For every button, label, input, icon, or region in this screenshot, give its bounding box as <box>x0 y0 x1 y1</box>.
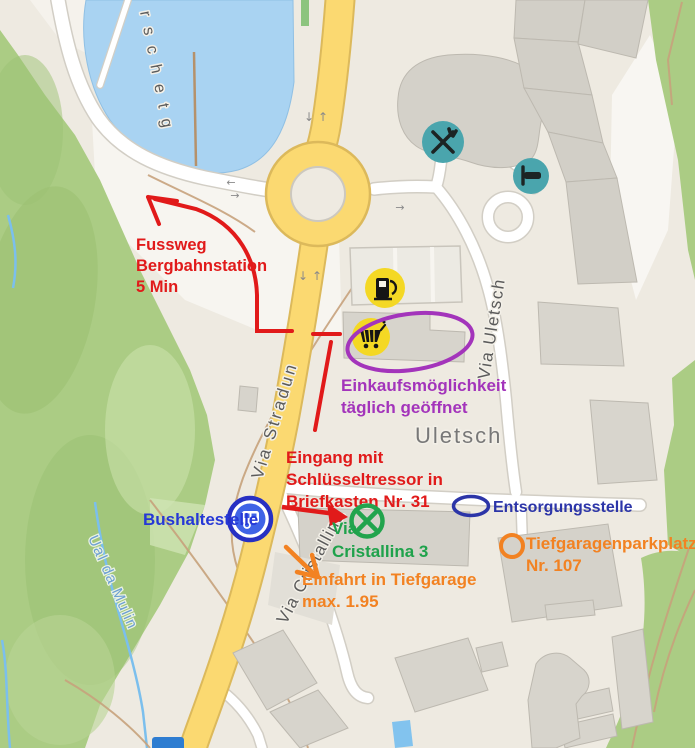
svg-text:Cristallina 3: Cristallina 3 <box>332 542 428 561</box>
svg-text:Entsorgungsstelle: Entsorgungsstelle <box>493 499 633 516</box>
svg-text:↑: ↑ <box>318 110 328 124</box>
svg-text:Via: Via <box>332 519 358 538</box>
annotation-bushaltestelle: Bushaltestelle <box>143 510 258 529</box>
svg-text:↓: ↓ <box>298 269 308 283</box>
svg-text:Eingang mit: Eingang mit <box>286 448 384 467</box>
svg-text:→: → <box>230 189 239 202</box>
svg-text:Einkaufsmöglichkeit: Einkaufsmöglichkeit <box>341 376 507 395</box>
fuel-station-icon[interactable] <box>365 268 405 308</box>
map-canvas[interactable]: rschetg Via Stradun Via Cristallina Via … <box>0 0 695 748</box>
svg-text:Einfahrt in Tiefgarage: Einfahrt in Tiefgarage <box>302 570 476 589</box>
restaurant-icon[interactable] <box>422 121 464 163</box>
svg-text:max. 1.95: max. 1.95 <box>302 592 379 611</box>
roundabout <box>266 142 370 246</box>
svg-text:täglich geöffnet: täglich geöffnet <box>341 398 468 417</box>
svg-text:↑: ↑ <box>312 269 322 283</box>
svg-text:Fussweg: Fussweg <box>136 236 207 254</box>
area-label-uletsch: Uletsch <box>415 423 502 448</box>
svg-text:↓: ↓ <box>304 110 314 124</box>
svg-text:Bushaltestelle: Bushaltestelle <box>143 510 258 529</box>
svg-text:→: → <box>395 201 404 214</box>
svg-text:Bergbahnstation: Bergbahnstation <box>136 257 267 275</box>
route-shield <box>152 737 184 748</box>
pool <box>392 720 413 748</box>
svg-text:←: ← <box>226 176 235 189</box>
svg-text:5 Min: 5 Min <box>136 278 178 296</box>
svg-text:Tiefgaragenparkplatz: Tiefgaragenparkplatz <box>526 534 695 553</box>
svg-text:Nr. 107: Nr. 107 <box>526 556 582 575</box>
hotel-bed-icon[interactable] <box>513 158 549 194</box>
svg-text:Schlüsseltressor in: Schlüsseltressor in <box>286 470 443 489</box>
